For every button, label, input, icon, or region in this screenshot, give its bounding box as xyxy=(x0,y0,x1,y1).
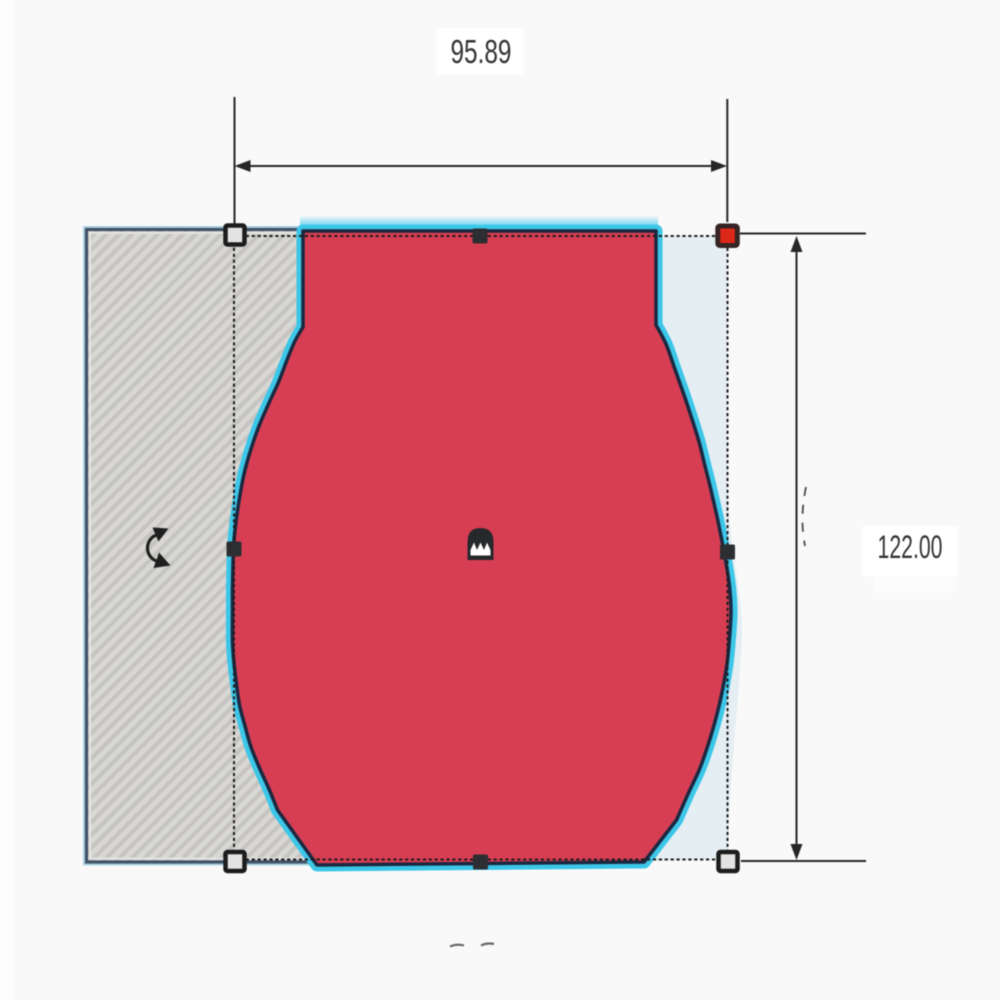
svg-text:95.89: 95.89 xyxy=(451,33,512,70)
svg-text:122.00: 122.00 xyxy=(878,529,943,565)
